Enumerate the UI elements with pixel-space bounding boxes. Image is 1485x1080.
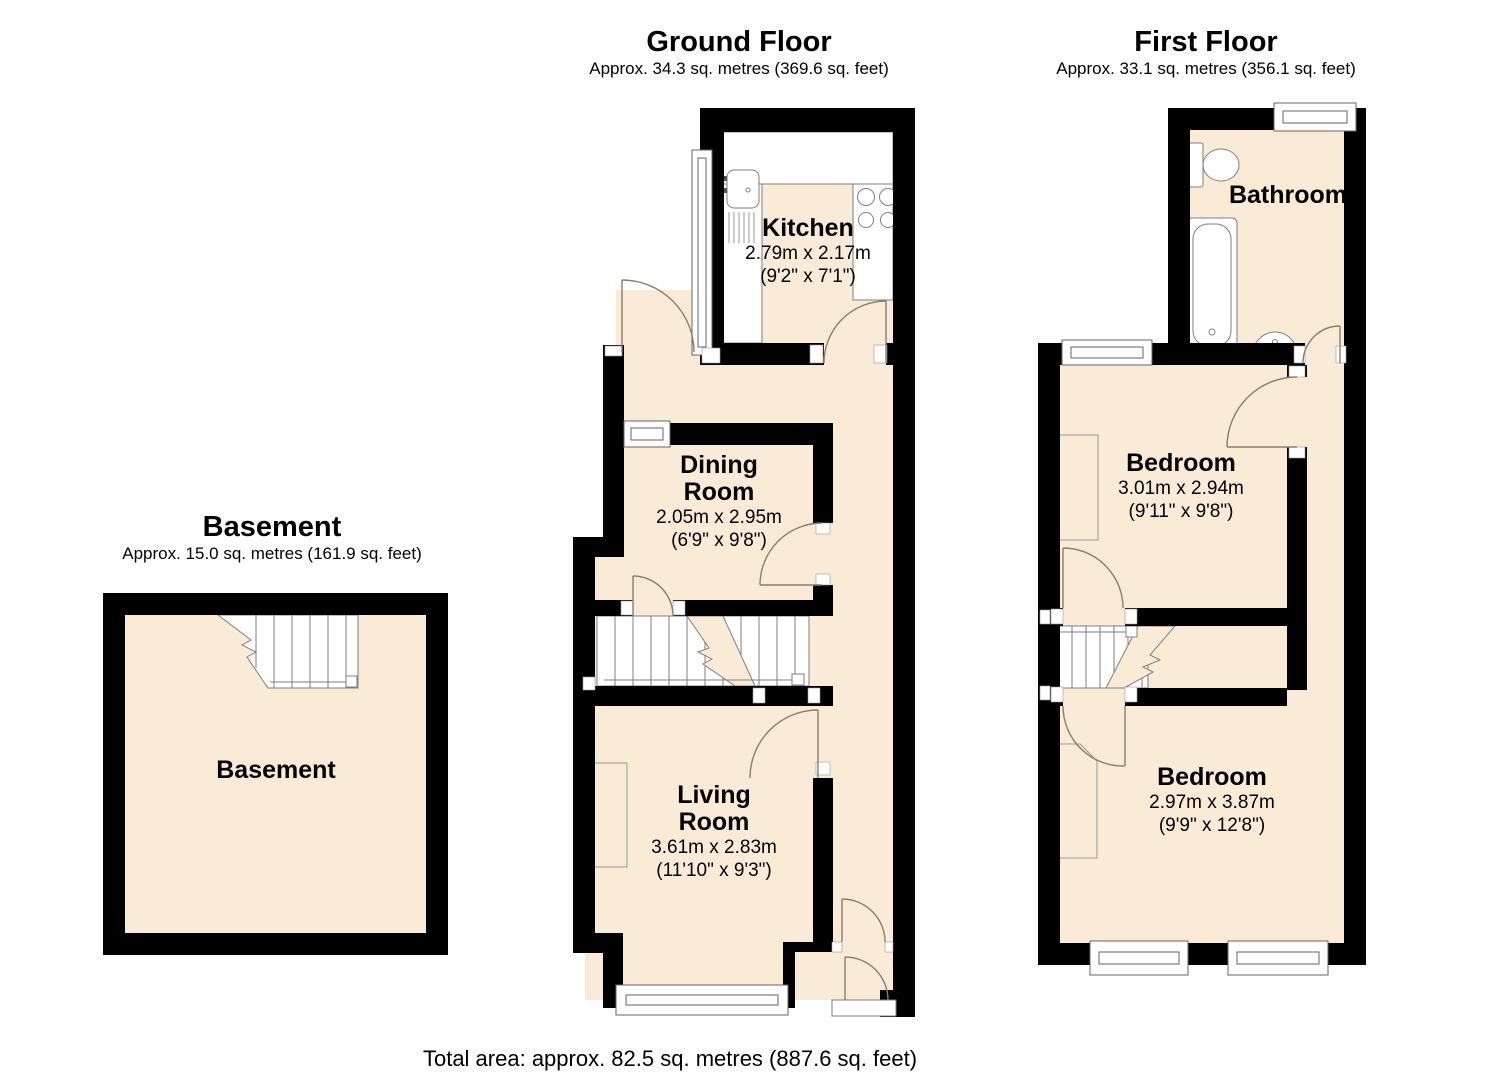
living-room-bay-window — [616, 985, 788, 1015]
bathroom-name: Bathroom — [1229, 182, 1347, 209]
living-room-name-line2: Room — [651, 809, 777, 836]
living-room-dims-metric: 3.61m x 2.83m — [651, 836, 777, 859]
dining-room-window — [624, 421, 670, 447]
kitchen-window — [692, 150, 712, 355]
gf-stairs-icon — [597, 616, 809, 686]
bedroom-front-dims-metric: 2.97m x 3.87m — [1149, 791, 1275, 814]
bedroom-front-window-left — [1090, 941, 1188, 975]
bedroom-front-dims-imperial: (9'9" x 12'8") — [1149, 814, 1275, 837]
first-floor-title: First Floor — [1056, 26, 1356, 58]
dining-room-name-line1: Dining — [656, 452, 782, 479]
front-porch-step — [832, 1000, 896, 1016]
first-floor-header: First Floor Approx. 33.1 sq. metres (356… — [1056, 26, 1356, 80]
living-room-dims-imperial: (11'10" x 9'3") — [651, 859, 777, 882]
living-room-name-line1: Living — [651, 782, 777, 809]
basement-title: Basement — [122, 511, 422, 543]
dining-room-dims-metric: 2.05m x 2.95m — [656, 506, 782, 529]
kitchen-dims-imperial: (9'2" x 7'1") — [745, 265, 871, 288]
basement-header: Basement Approx. 15.0 sq. metres (161.9 … — [122, 511, 422, 565]
first-floor-subtitle: Approx. 33.1 sq. metres (356.1 sq. feet) — [1056, 58, 1356, 80]
basement-room-name: Basement — [216, 757, 336, 784]
living-room-label: Living Room 3.61m x 2.83m (11'10" x 9'3"… — [651, 782, 777, 882]
basement-room-label: Basement — [216, 757, 336, 784]
bedroom-front-label: Bedroom 2.97m x 3.87m (9'9" x 12'8") — [1149, 764, 1275, 837]
ground-floor-subtitle: Approx. 34.3 sq. metres (369.6 sq. feet) — [589, 58, 889, 80]
dining-room-label: Dining Room 2.05m x 2.95m (6'9" x 9'8") — [656, 452, 782, 552]
ground-floor-title: Ground Floor — [589, 26, 889, 58]
bathroom-window — [1274, 103, 1356, 131]
basement-subtitle: Approx. 15.0 sq. metres (161.9 sq. feet) — [122, 543, 422, 565]
bedroom-rear-dims-metric: 3.01m x 2.94m — [1118, 477, 1244, 500]
kitchen-name: Kitchen — [745, 215, 871, 242]
bedroom-rear-dims-imperial: (9'11" x 9'8") — [1118, 500, 1244, 523]
kitchen-label: Kitchen 2.79m x 2.17m (9'2" x 7'1") — [745, 215, 871, 288]
bedroom-rear-window — [1062, 340, 1152, 365]
dining-room-dims-imperial: (6'9" x 9'8") — [656, 529, 782, 552]
bedroom-rear-label: Bedroom 3.01m x 2.94m (9'11" x 9'8") — [1118, 450, 1244, 523]
bedroom-front-window-right — [1228, 941, 1328, 975]
total-area-label: Total area: approx. 82.5 sq. metres (887… — [423, 1046, 917, 1072]
bedroom-front-name: Bedroom — [1149, 764, 1275, 791]
bedroom-rear-name: Bedroom — [1118, 450, 1244, 477]
floorplan-page: Ground Floor Approx. 34.3 sq. metres (36… — [0, 0, 1485, 1080]
dining-room-name-line2: Room — [656, 479, 782, 506]
first-floor-plan — [1038, 103, 1366, 975]
kitchen-dims-metric: 2.79m x 2.17m — [745, 242, 871, 265]
bathroom-label: Bathroom — [1229, 182, 1347, 209]
bathtub-icon — [1187, 218, 1237, 353]
ground-floor-header: Ground Floor Approx. 34.3 sq. metres (36… — [589, 26, 889, 80]
